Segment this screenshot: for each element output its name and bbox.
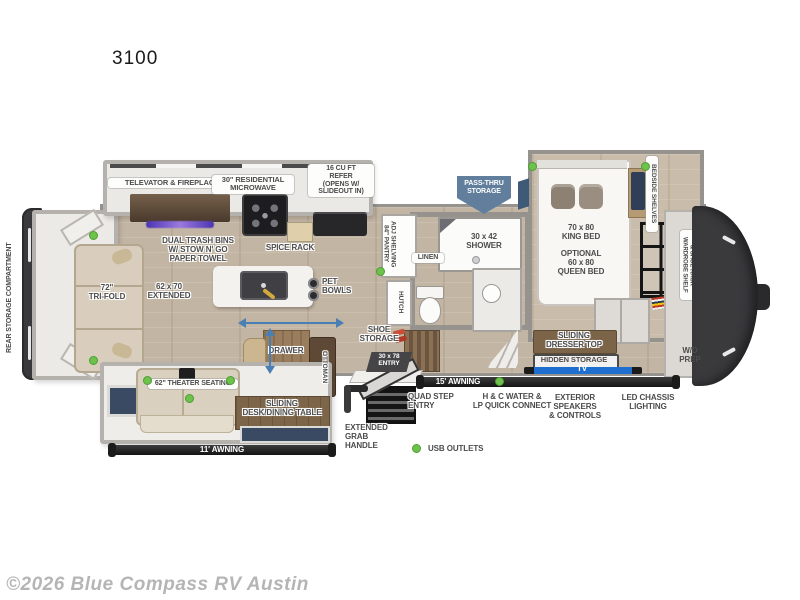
spice-rack-shelf — [287, 222, 313, 242]
usb-outlet-dot — [495, 377, 504, 386]
grab-handle-post — [344, 385, 351, 413]
theater-label: 62" THEATER SEATING — [148, 379, 238, 389]
usb-outlet-dot — [89, 231, 98, 240]
awning-11-label: 11' AWNING — [180, 446, 264, 455]
usb-outlet-dot — [528, 162, 537, 171]
toilet-bowl — [419, 297, 441, 324]
rear-cap-accent-bottom — [28, 326, 31, 360]
microwave-label: 30" RESIDENTIAL MICROWAVE — [212, 175, 294, 194]
fireplace-led-glow — [146, 221, 214, 228]
desk-window — [240, 426, 330, 443]
page-title: 3100 — [112, 48, 158, 70]
speakers-label: EXTERIOR SPEAKERS & CONTROLS — [538, 394, 612, 421]
bed-pillow-right — [579, 184, 603, 209]
refer-label: 16 CU FT REFER (OPENS W/ SLIDEOUT IN) — [308, 164, 374, 197]
refrigerator — [313, 212, 367, 236]
usb-outlet-dot — [143, 376, 152, 385]
king-bed-label: 70 x 80 KING BED — [552, 224, 610, 242]
usb-outlet-dot — [185, 394, 194, 403]
slide-arrow-vertical — [269, 330, 271, 372]
led-lighting-label: LED CHASSIS LIGHTING — [620, 394, 676, 412]
theater-footrests — [140, 415, 234, 433]
wd-prep-label: W/D PREP — [670, 347, 710, 365]
pet-bowls-label: PET BOWLS — [322, 278, 358, 296]
ottoman-label: OTTOMAN — [314, 342, 328, 392]
dual-trash-label: DUAL TRASH BINS W/ STOW N' GO PAPER TOWE… — [146, 237, 250, 264]
tv-label: TV — [572, 365, 592, 374]
fireplace-cabinet — [130, 194, 230, 222]
usb-outlet-dot — [376, 267, 385, 276]
shoe-storage-label: SHOE STORAGE — [356, 326, 402, 344]
hutch-label: HUTCH — [390, 284, 404, 320]
sofa-slide-label: 62 x 70 EXTENDED — [140, 283, 198, 301]
pet-bowl-1 — [308, 278, 319, 289]
usb-outlet-dot — [89, 356, 98, 365]
island-faucet — [261, 283, 266, 288]
pass-thru-door — [518, 178, 529, 210]
bed-pillow-left — [551, 184, 575, 209]
sliding-dresser-label: SLIDING DRESSER TOP — [533, 332, 615, 350]
slide-arrow-horizontal — [240, 322, 342, 324]
quad-step-label: QUAD STEP ENTRY — [408, 393, 468, 411]
shower-drain — [472, 256, 480, 264]
floorplan-canvas: 3100 REAR STORAGE COMPARTMENT 72" TRI-FO… — [0, 0, 800, 600]
bed-headboard — [537, 160, 627, 169]
rear-storage-label: REAR STORAGE COMPARTMENT — [6, 238, 18, 358]
linen-label: LINEN — [412, 253, 444, 263]
spice-rack-label: SPICE RACK — [258, 244, 322, 253]
pantry-label: 84" PANTRY ADJ SHELVING — [382, 216, 412, 272]
usb-legend-label: USB OUTLETS — [428, 445, 508, 454]
pet-bowl-2 — [308, 290, 319, 301]
dealer-copyright: ©2026 Blue Compass RV Austin — [6, 574, 309, 596]
tri-fold-sofa — [74, 244, 144, 373]
pass-thru-label: PASS-THRU STORAGE — [457, 180, 511, 196]
sofa-label: 72" TRI-FOLD — [84, 284, 130, 302]
usb-legend-dot — [412, 444, 421, 453]
awning-15-label: 15' AWNING — [428, 378, 488, 387]
stove — [242, 194, 288, 236]
grab-handle-label: EXTENDED GRAB HANDLE — [345, 424, 405, 451]
shower-label: 30 x 42 SHOWER — [458, 233, 510, 251]
entry-door-label: 30 x 78 ENTRY — [368, 353, 410, 368]
usb-outlet-dot — [226, 376, 235, 385]
rear-cap-accent-top — [28, 228, 31, 262]
usb-outlet-dot — [641, 162, 650, 171]
hidden-storage-label: HIDDEN STORAGE — [533, 356, 615, 364]
desk-label: SLIDING DESK/DINING TABLE — [240, 400, 324, 418]
vanity-sink — [482, 284, 501, 303]
nightstand-cushion — [631, 172, 645, 210]
queen-option-label: OPTIONAL 60 x 80 QUEEN BED — [552, 250, 610, 277]
